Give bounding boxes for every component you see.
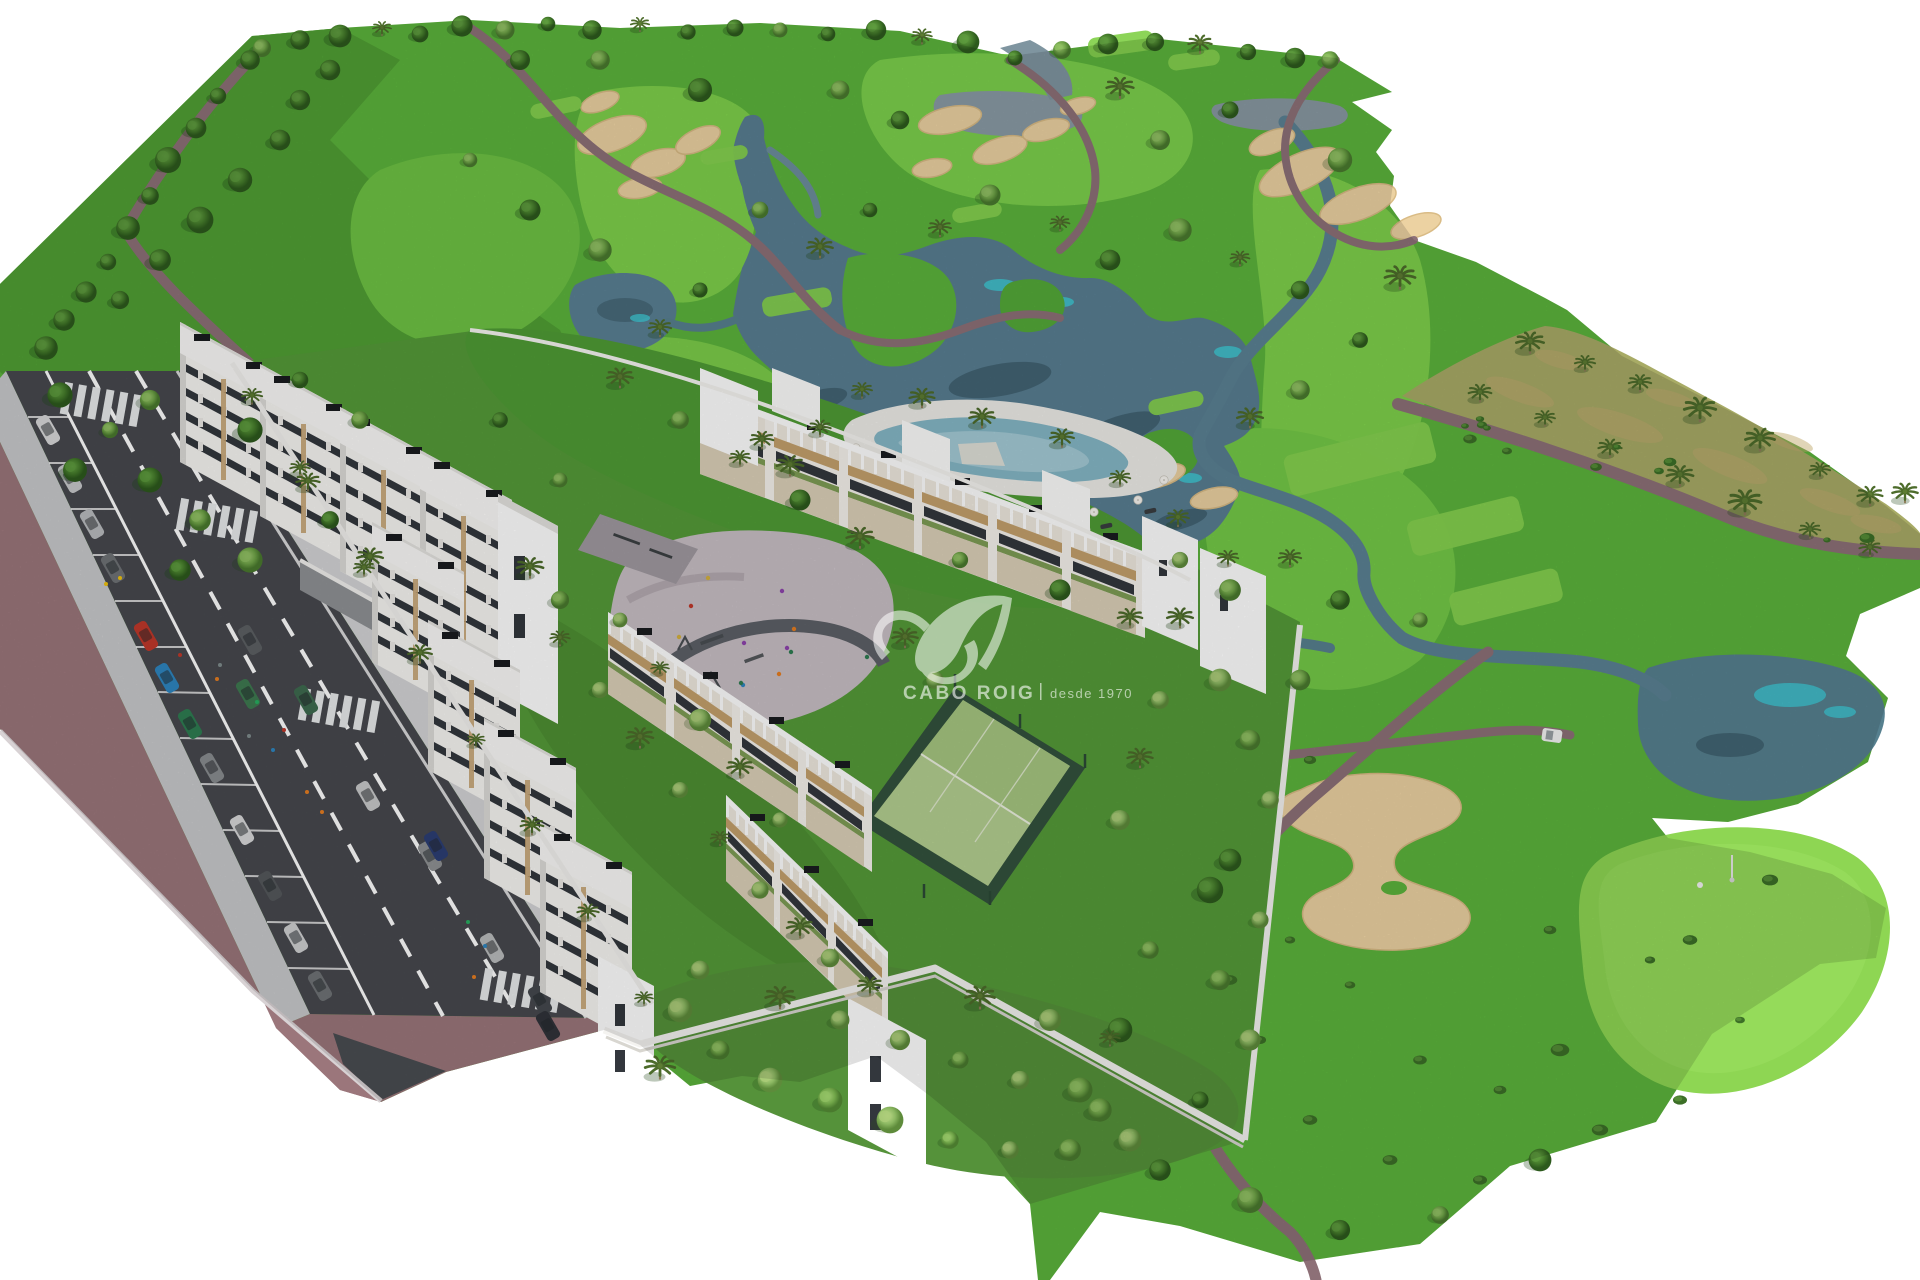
svg-text:CABO ROIG: CABO ROIG — [903, 683, 1035, 704]
svg-text:desde 1970: desde 1970 — [1050, 686, 1133, 701]
